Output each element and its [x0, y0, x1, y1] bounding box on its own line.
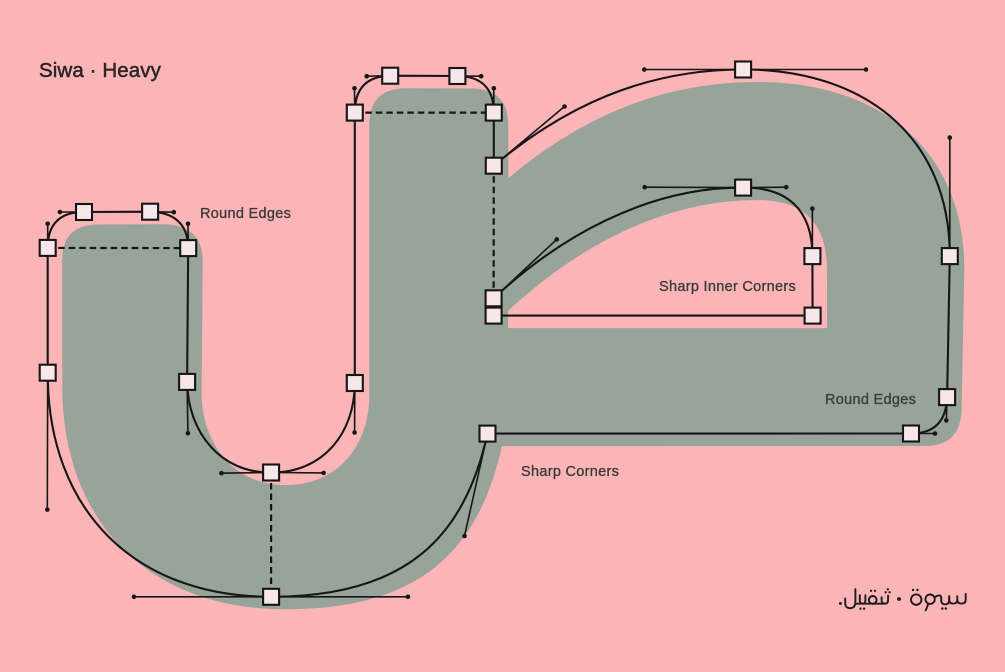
svg-text:Round Edges: Round Edges [200, 206, 291, 222]
svg-text:Round Edges: Round Edges [825, 392, 916, 408]
svg-text:Sharp Inner Corners: Sharp Inner Corners [659, 279, 796, 295]
svg-text:Sharp Corners: Sharp Corners [521, 464, 619, 480]
svg-text:Siwa · Heavy: Siwa · Heavy [39, 59, 162, 82]
